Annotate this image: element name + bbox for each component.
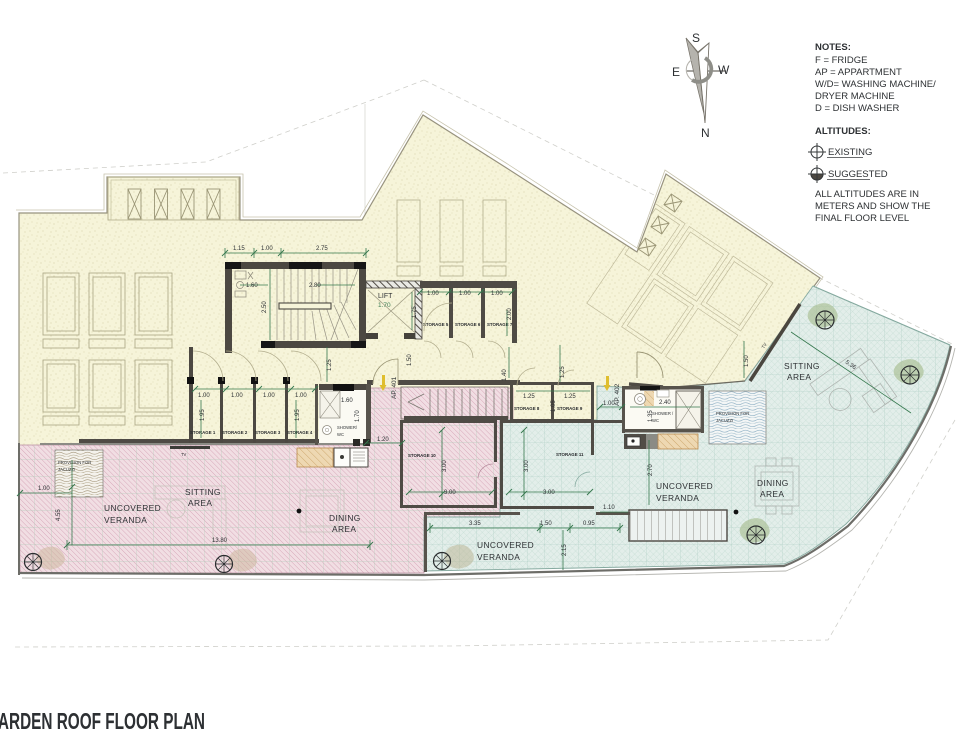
svg-text:1.35: 1.35: [648, 410, 654, 422]
svg-text:1.00: 1.00: [231, 393, 243, 399]
svg-text:ALTITUDES:: ALTITUDES:: [815, 126, 871, 137]
svg-text:0.95: 0.95: [583, 521, 595, 527]
svg-text:STORAGE 8: STORAGE 8: [514, 406, 540, 411]
svg-text:1.50: 1.50: [407, 354, 413, 366]
svg-text:STORAGE 4: STORAGE 4: [287, 430, 313, 435]
svg-text:2.80: 2.80: [309, 283, 321, 289]
svg-text:3.00: 3.00: [524, 460, 530, 472]
svg-text:3.35: 3.35: [469, 521, 481, 527]
svg-text:SHOWER/: SHOWER/: [337, 425, 358, 430]
svg-text:DINING: DINING: [329, 513, 361, 523]
svg-text:2.75: 2.75: [316, 246, 328, 252]
svg-text:1.20: 1.20: [377, 437, 389, 443]
svg-text:1.60: 1.60: [341, 398, 353, 404]
svg-text:1.25: 1.25: [523, 394, 535, 400]
svg-text:1.50: 1.50: [540, 521, 552, 527]
svg-text:2.00: 2.00: [507, 308, 513, 320]
svg-text:WC: WC: [337, 432, 344, 437]
svg-text:NOTES:: NOTES:: [815, 42, 851, 53]
svg-text:JACUZZI: JACUZZI: [58, 467, 75, 472]
svg-text:AP = APPARTMENT: AP = APPARTMENT: [815, 67, 902, 78]
svg-text:STORAGE 10: STORAGE 10: [408, 453, 436, 458]
svg-text:STORAGE 5: STORAGE 5: [423, 322, 449, 327]
svg-text:AP. 401: AP. 401: [391, 376, 398, 399]
svg-text:JACUZZI: JACUZZI: [716, 418, 733, 423]
svg-text:1.75: 1.75: [412, 306, 418, 318]
svg-text:3.00: 3.00: [444, 490, 456, 496]
svg-text:2.70: 2.70: [648, 464, 654, 476]
svg-text:LIFT: LIFT: [378, 293, 393, 300]
svg-text:S: S: [692, 31, 700, 45]
svg-text:1.25: 1.25: [327, 359, 333, 371]
svg-text:1.70: 1.70: [355, 410, 361, 422]
svg-text:STORAGE 11: STORAGE 11: [556, 452, 584, 457]
svg-text:3.00: 3.00: [442, 460, 448, 472]
svg-text:2.15: 2.15: [562, 544, 568, 556]
svg-text:AREA: AREA: [332, 524, 356, 534]
svg-text:VERANDA: VERANDA: [656, 493, 699, 503]
svg-text:STORAGE 6: STORAGE 6: [455, 322, 481, 327]
svg-text:1.40: 1.40: [502, 369, 508, 381]
svg-text:UNCOVERED: UNCOVERED: [104, 503, 161, 513]
svg-text:1.95: 1.95: [200, 409, 206, 421]
svg-text:W/D= WASHING MACHINE/: W/D= WASHING MACHINE/: [815, 79, 936, 90]
svg-text:AP. 402: AP. 402: [614, 383, 621, 406]
svg-text:1.50: 1.50: [744, 355, 750, 367]
svg-text:DRYER MACHINE: DRYER MACHINE: [815, 91, 895, 102]
svg-text:1.95: 1.95: [295, 409, 301, 421]
svg-text:DINING: DINING: [757, 478, 789, 488]
svg-text:STORAGE 2: STORAGE 2: [222, 430, 248, 435]
svg-text:AREA: AREA: [188, 498, 212, 508]
svg-text:E: E: [672, 65, 680, 79]
svg-text:1.00: 1.00: [491, 291, 503, 297]
svg-text:3.00: 3.00: [543, 490, 555, 496]
svg-text:GARDEN ROOF FLOOR PLAN: GARDEN ROOF FLOOR PLAN: [0, 708, 205, 732]
svg-text:AREA: AREA: [787, 372, 811, 382]
svg-text:1.00: 1.00: [295, 393, 307, 399]
svg-text:4.55: 4.55: [56, 509, 62, 521]
svg-text:13.80: 13.80: [212, 538, 228, 544]
svg-text:FINAL FLOOR LEVEL: FINAL FLOOR LEVEL: [815, 213, 909, 224]
svg-text:STORAGE 3: STORAGE 3: [255, 430, 281, 435]
svg-text:1.00: 1.00: [198, 393, 210, 399]
svg-text:1.15: 1.15: [233, 246, 245, 252]
svg-text:N: N: [701, 126, 710, 140]
svg-text:1.00: 1.00: [603, 401, 615, 407]
svg-text:PROVISION FOR: PROVISION FOR: [58, 460, 91, 465]
svg-text:1.70: 1.70: [378, 302, 391, 309]
svg-text:TV: TV: [181, 452, 187, 457]
svg-text:1.25: 1.25: [564, 394, 576, 400]
svg-text:VERANDA: VERANDA: [477, 552, 520, 562]
svg-text:1.25: 1.25: [560, 366, 566, 378]
svg-text:STORAGE 7: STORAGE 7: [487, 322, 513, 327]
svg-text:1.00: 1.00: [38, 486, 50, 492]
svg-text:VERANDA: VERANDA: [104, 515, 147, 525]
svg-text:PROVISION FOR: PROVISION FOR: [716, 411, 749, 416]
svg-text:STORAGE 9: STORAGE 9: [557, 406, 583, 411]
svg-text:AREA: AREA: [760, 489, 784, 499]
svg-text:SITTING: SITTING: [185, 487, 221, 497]
svg-text:1.00: 1.00: [263, 393, 275, 399]
svg-text:1.60: 1.60: [246, 283, 258, 289]
svg-text:1.05: 1.05: [551, 400, 557, 412]
svg-text:1.00: 1.00: [427, 291, 439, 297]
svg-text:ALL ALTITUDES ARE IN: ALL ALTITUDES ARE IN: [815, 189, 919, 200]
svg-text:METERS AND SHOW THE: METERS AND SHOW THE: [815, 201, 930, 212]
svg-text:D = DISH WASHER: D = DISH WASHER: [815, 103, 900, 114]
svg-text:EXISTING: EXISTING: [828, 147, 872, 158]
svg-text:STORAGE 1: STORAGE 1: [190, 430, 216, 435]
svg-text:SHOWER /: SHOWER /: [652, 411, 674, 416]
svg-text:1.10: 1.10: [603, 505, 615, 511]
svg-text:2.50: 2.50: [262, 301, 268, 313]
svg-text:1.00: 1.00: [459, 291, 471, 297]
svg-text:UNCOVERED: UNCOVERED: [656, 481, 713, 491]
svg-text:UNCOVERED: UNCOVERED: [477, 540, 534, 550]
svg-text:W: W: [718, 63, 730, 77]
svg-text:SUGGESTED: SUGGESTED: [828, 169, 888, 180]
svg-text:2.40: 2.40: [659, 400, 671, 406]
svg-text:F = FRIDGE: F = FRIDGE: [815, 55, 868, 66]
svg-text:1.00: 1.00: [261, 246, 273, 252]
svg-text:SITTING: SITTING: [784, 361, 820, 371]
